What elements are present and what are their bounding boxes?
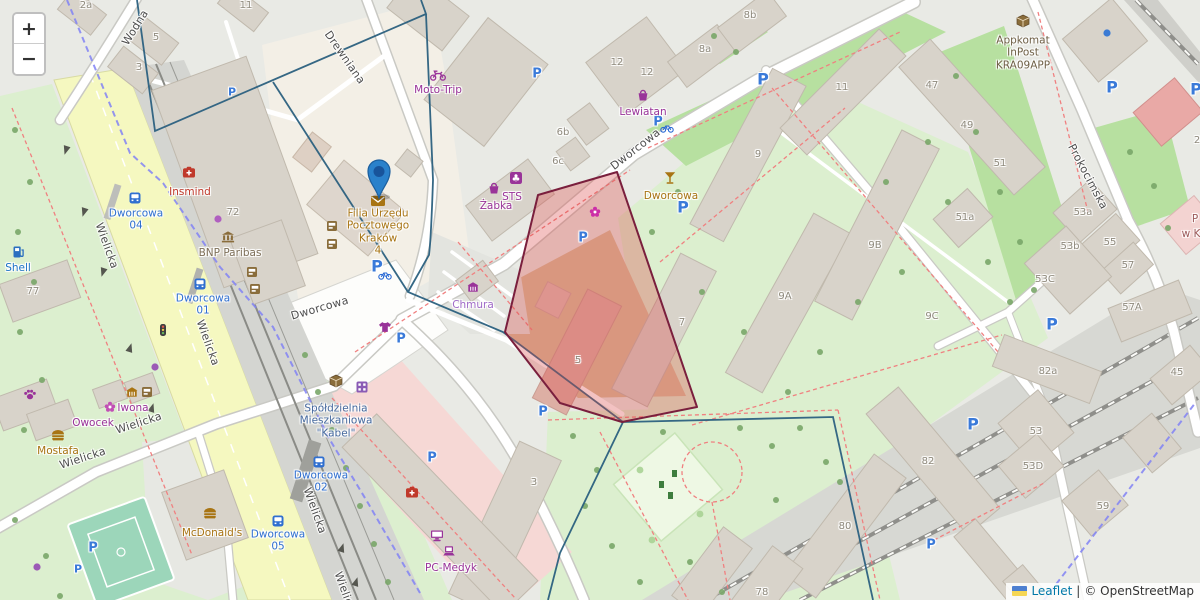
post-office-label: Filia Urzędu Pocztowego Kraków 4 — [347, 207, 409, 257]
chmura-label: Chmura — [452, 299, 494, 311]
openstreetmap-link[interactable]: © OpenStreetMap — [1084, 584, 1194, 598]
sts-label: STS — [502, 191, 522, 203]
parking-icon: P — [677, 199, 689, 218]
owocek-label: Owocek — [72, 417, 114, 429]
house-number: 53D — [1023, 461, 1043, 473]
ukraine-flag-icon — [1012, 586, 1027, 596]
pub-dworcowa-label: Dworcowa — [644, 190, 698, 202]
atm-icon — [247, 267, 258, 278]
street-label: Dworcowa — [609, 127, 664, 174]
bus-icon — [313, 456, 325, 468]
bus-icon — [194, 278, 206, 290]
house-number: 72 — [227, 207, 240, 219]
house-number: 7 — [679, 317, 685, 329]
parking-icon: P — [1106, 79, 1118, 98]
parking-icon: P — [427, 450, 437, 465]
house-number: 57A — [1122, 302, 1142, 314]
bank-icon — [222, 231, 235, 243]
motorcycle-icon — [430, 69, 446, 81]
apartment-icon — [356, 381, 368, 393]
clinic-partial-1-label: P — [1192, 213, 1198, 225]
bus-icon — [272, 515, 284, 527]
street-label: Wielicka — [331, 570, 360, 600]
parking-icon: P — [757, 71, 769, 90]
burger-icon — [51, 429, 65, 441]
house-number: 78 — [756, 587, 769, 599]
house-number: 9C — [925, 311, 938, 323]
zoom-in-button[interactable]: + — [14, 14, 44, 44]
inpost-locker-label: Appkomat InPost KRA09APP — [996, 34, 1050, 71]
clinic-partial-2-label: w K — [1182, 228, 1200, 240]
house-number: 59 — [1097, 501, 1110, 513]
bnp-paribas-label: BNP Paribas — [199, 247, 262, 259]
house-number: 8a — [699, 44, 712, 56]
stop-dworcowa-01-label: Dworcowa 01 — [176, 293, 230, 318]
atm-icon — [327, 239, 338, 250]
street-label: Wielicka — [114, 410, 164, 437]
house-number: 6b — [557, 127, 570, 139]
dot-icon — [1103, 29, 1112, 38]
street-label: Dworcowa — [290, 295, 351, 324]
house-number: 3 — [531, 477, 537, 489]
house-number: 53 — [1030, 426, 1043, 438]
house-number: 9 — [755, 149, 761, 161]
parking-icon: P — [228, 87, 236, 100]
zoom-out-button[interactable]: − — [14, 44, 44, 74]
bus-icon — [129, 192, 141, 204]
street-label: Wodna — [120, 8, 152, 48]
parking-icon: P — [1046, 316, 1058, 335]
bike-icon — [660, 123, 674, 133]
parking-icon: P — [396, 331, 406, 346]
house-number: 47 — [926, 80, 939, 92]
package-icon — [329, 374, 343, 388]
house-number: 53C — [1035, 274, 1055, 286]
stall-icon — [467, 282, 480, 293]
house-number: 5 — [575, 355, 581, 367]
house-number: 9B — [868, 240, 881, 252]
parking-icon: P — [371, 258, 383, 277]
cocktail-icon — [664, 172, 676, 185]
parking-icon: P — [926, 537, 936, 552]
street-label: Wielicka — [58, 445, 108, 472]
street-label: Wielicka — [92, 221, 121, 270]
zabka-label: Żabka — [480, 200, 513, 212]
street-label: Prokocimska — [1064, 142, 1109, 212]
attribution-bar: Leaflet | © OpenStreetMap — [1006, 583, 1200, 600]
street-label: Drewniana — [321, 29, 367, 87]
house-number: 12 — [611, 57, 624, 69]
stop-dworcowa-05-label: Dworcowa 05 — [251, 529, 305, 554]
burger-icon — [203, 507, 217, 519]
house-number: 49 — [961, 120, 974, 132]
basket-icon — [487, 182, 501, 195]
leaflet-link[interactable]: Leaflet — [1031, 584, 1072, 598]
house-number: 57 — [1122, 260, 1135, 272]
laptop-icon — [442, 546, 456, 557]
atm-icon — [142, 387, 153, 398]
house-number: 2 — [1194, 135, 1200, 147]
street-label: Wielicka — [300, 486, 329, 535]
house-number: 77 — [27, 286, 40, 298]
dot-icon — [214, 215, 223, 224]
moto-trip-label: Moto-Trip — [414, 84, 462, 96]
fuel-icon — [13, 246, 26, 259]
basket-icon — [636, 89, 650, 102]
house-number: 9A — [778, 291, 791, 303]
lewiatan-label: Lewiatan — [619, 106, 666, 118]
street-label: Wielicka — [193, 318, 222, 367]
zoom-control: + − — [12, 12, 46, 76]
house-number: 53a — [1074, 207, 1093, 219]
atm-icon — [327, 221, 338, 232]
house-number: 51 — [994, 158, 1007, 170]
house-number: 11 — [240, 0, 253, 12]
club-icon: ♣ — [510, 172, 523, 185]
svg-text:♣: ♣ — [512, 174, 521, 185]
parking-icon: P — [88, 540, 98, 555]
firstaid-icon — [183, 166, 196, 178]
house-number: 82 — [922, 456, 935, 468]
house-number: 51a — [956, 212, 975, 224]
parking-icon: P — [967, 416, 979, 435]
parking-icon: P — [653, 114, 663, 129]
paw-icon — [24, 388, 37, 400]
map-marker[interactable] — [366, 157, 392, 200]
spoldzielnia-kabel-label: Spółdzielnia Mieszkaniowa "Kabel" — [300, 402, 373, 439]
parking-icon: P — [1190, 81, 1200, 100]
house-number: 3 — [136, 62, 142, 74]
map-labels: WodnaDrewnianaDworcowaDworcowaWielickaWi… — [0, 0, 1200, 600]
house-number: 8b — [744, 10, 757, 22]
parking-icon: P — [578, 230, 588, 245]
dot-icon — [33, 563, 42, 572]
parking-icon: P — [538, 404, 548, 419]
atm-icon — [250, 284, 261, 295]
dot-icon — [151, 363, 160, 372]
house-number: 45 — [1171, 367, 1184, 379]
house-number: 6c — [552, 156, 564, 168]
mostafa-label: Mostafa — [37, 445, 79, 457]
insmind-label: Insmind — [169, 186, 211, 198]
house-number: 12 — [641, 67, 654, 79]
desktop-icon — [430, 530, 444, 543]
house-number: 55 — [1104, 237, 1117, 249]
house-number: 80 — [839, 521, 852, 533]
stall-icon — [126, 387, 139, 398]
trafficlight-icon — [160, 324, 167, 337]
mcdonalds-label: McDonald's — [182, 527, 242, 539]
tshirt-icon — [378, 322, 392, 333]
shell-label: Shell — [5, 262, 31, 274]
house-number: 11 — [836, 82, 849, 94]
iwona-label: Iwona — [117, 402, 148, 414]
attribution-separator: | — [1076, 584, 1080, 598]
parking-icon: P — [74, 564, 82, 577]
house-number: 5 — [153, 32, 159, 44]
parking-icon: P — [532, 66, 542, 81]
pc-medyk-label: PC-Medyk — [425, 562, 477, 574]
package-icon — [1016, 14, 1030, 28]
firstaid-icon — [406, 486, 419, 498]
flower-icon — [104, 401, 116, 413]
house-number: 82a — [1039, 366, 1058, 378]
stop-dworcowa-02-label: Dworcowa 02 — [294, 470, 348, 495]
stop-dworcowa-04-label: Dworcowa 04 — [109, 208, 163, 233]
bike-icon — [378, 270, 392, 280]
flower-icon — [589, 206, 601, 218]
house-number: 2a — [80, 0, 93, 12]
house-number: 53b — [1060, 241, 1079, 253]
map-canvas[interactable]: WodnaDrewnianaDworcowaDworcowaWielickaWi… — [0, 0, 1200, 600]
